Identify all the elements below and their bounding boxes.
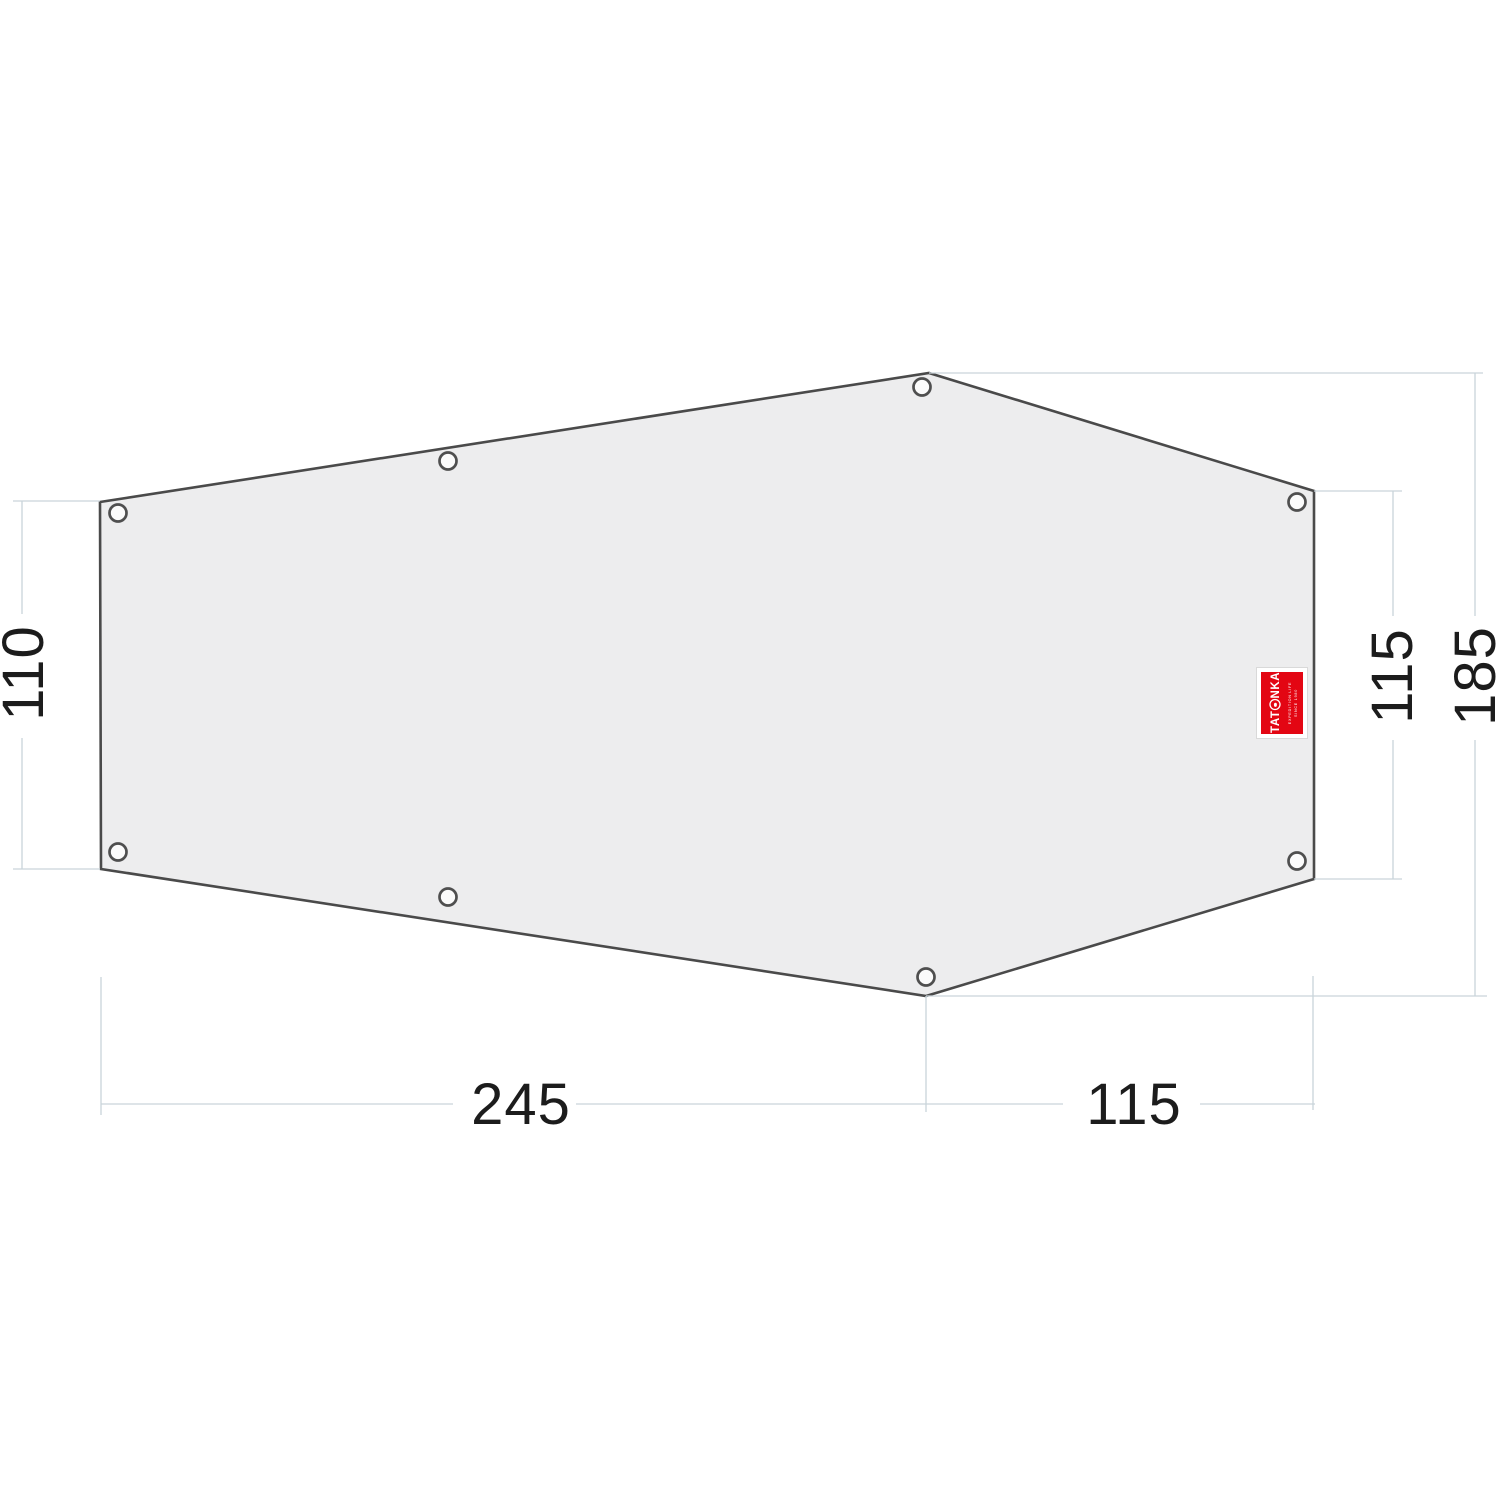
grommet-left-top-icon [110, 505, 127, 522]
grommet-top-mid-icon [440, 453, 457, 470]
grommet-left-bottom-icon [110, 844, 127, 861]
dim-label-bottom-left-width: 245 [471, 1072, 571, 1137]
dim-label-left-height: 110 [0, 625, 56, 720]
brand-word-prefix: TAT [1270, 711, 1282, 733]
brand-label: TAT NKA EXPEDITION LIFE SINCE 1980 [1257, 668, 1308, 739]
grommet-bottom-apex-icon [918, 969, 935, 986]
brand-word-suffix: NKA [1270, 672, 1282, 699]
grommet-right-top-icon [1289, 494, 1306, 511]
brand-tagline2: SINCE 1980 [1294, 689, 1298, 717]
footprint-dimension-diagram: 110 115 185 245 115 TAT NKA EXPEDITION L… [0, 0, 1500, 1500]
groundsheet-outline [100, 373, 1314, 996]
brand-tagline: EXPEDITION LIFE [1288, 682, 1292, 724]
diagram-canvas: 110 115 185 245 115 TAT NKA EXPEDITION L… [0, 0, 1500, 1500]
grommet-right-bottom-icon [1289, 853, 1306, 870]
dim-label-bottom-right-width: 115 [1086, 1072, 1181, 1137]
grommet-top-apex-icon [914, 379, 931, 396]
grommet-bottom-mid-icon [440, 889, 457, 906]
dim-label-right-outer-height: 185 [1443, 626, 1500, 726]
dim-label-right-inner-height: 115 [1360, 628, 1425, 723]
